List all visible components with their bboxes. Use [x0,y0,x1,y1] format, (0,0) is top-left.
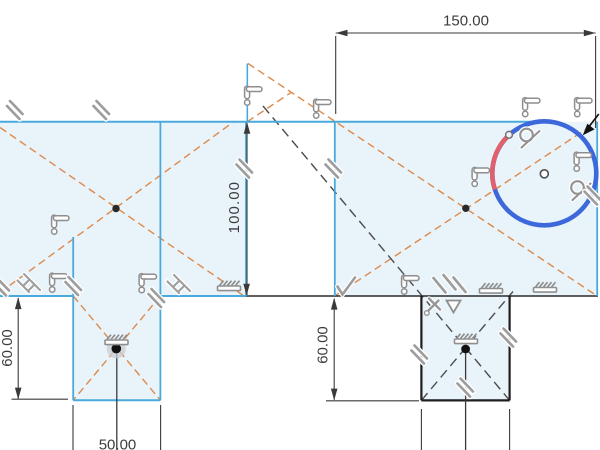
svg-text:50.00: 50.00 [99,436,137,450]
svg-text:60.00: 60.00 [0,329,16,367]
svg-text:150.00: 150.00 [443,13,489,30]
svg-text:100.00: 100.00 [226,181,243,233]
svg-text:60.00: 60.00 [315,326,332,364]
